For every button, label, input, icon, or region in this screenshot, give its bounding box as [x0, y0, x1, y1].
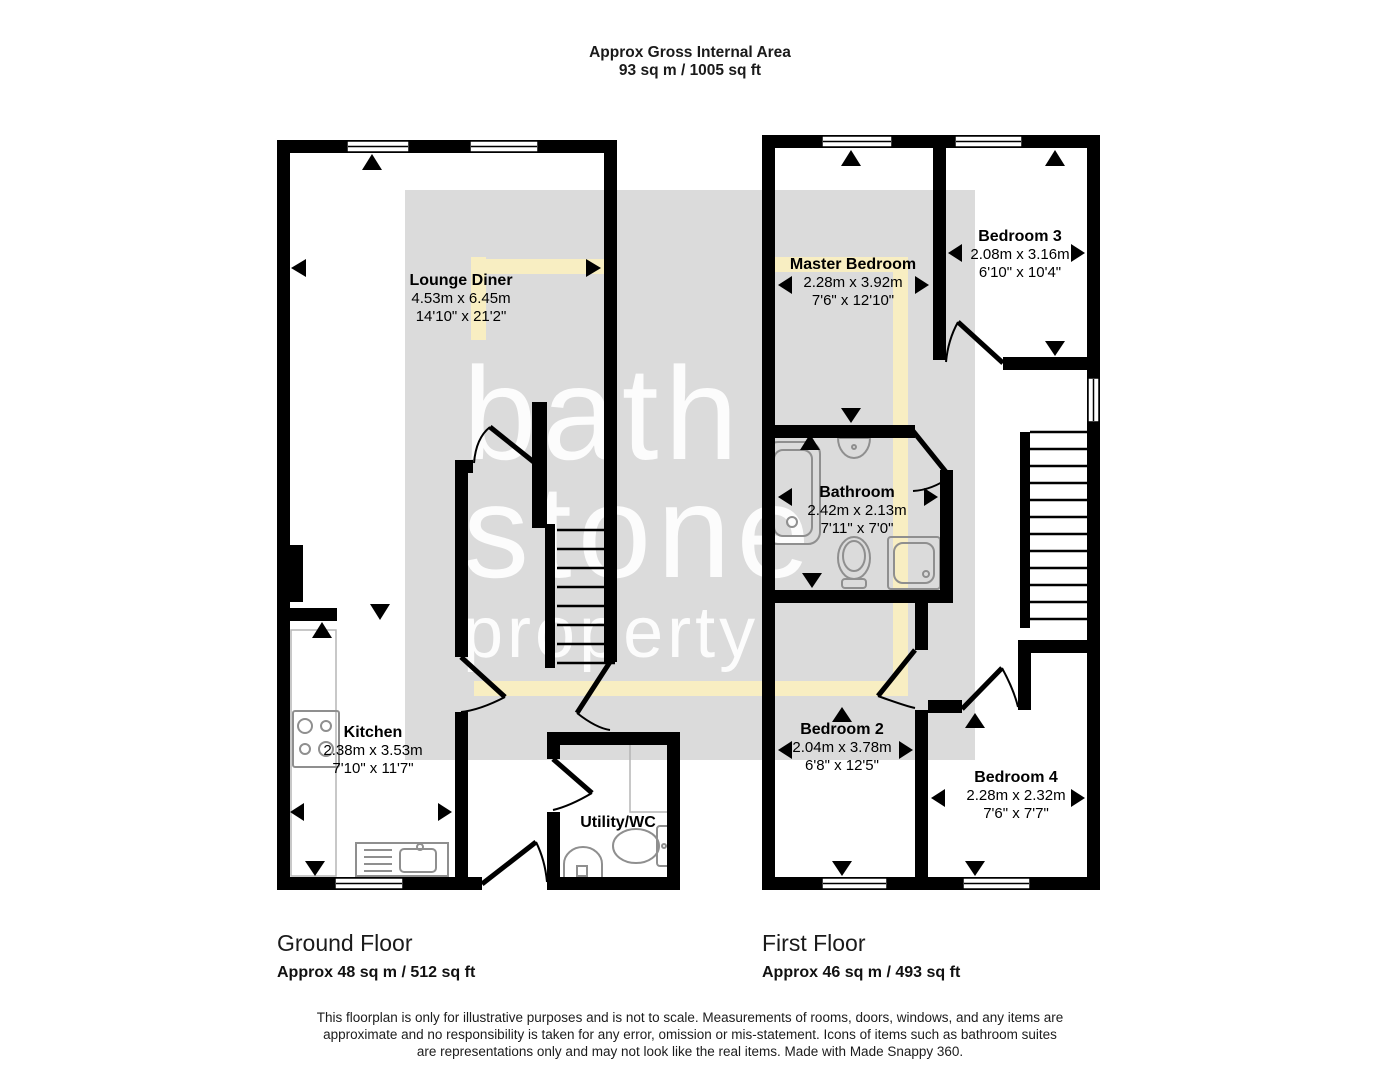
utility-basin-icon [564, 847, 602, 877]
room-imperial: 7'6" x 7'7" [896, 805, 1136, 823]
first-stairs [1030, 432, 1087, 619]
room-name: Utility/WC [498, 814, 738, 832]
floor-name: First Floor [762, 930, 1182, 957]
room-label-lounge-diner: Lounge Diner 4.53m x 6.45m 14'10" x 21'2… [341, 272, 581, 326]
arrow-right-icon [438, 803, 452, 821]
disclaimer-line3: are representations only and may not loo… [290, 1043, 1090, 1060]
door-back [482, 842, 547, 884]
floor-area: Approx 46 sq m / 493 sq ft [762, 964, 1182, 982]
room-metric: 2.42m x 2.13m [737, 502, 977, 520]
arrow-down-icon [1045, 341, 1065, 356]
room-imperial: 7'11" x 7'0" [737, 520, 977, 538]
window [963, 878, 1030, 889]
floorplan-page: Approx Gross Internal Area 93 sq m / 100… [0, 0, 1381, 1080]
arrow-up-icon [312, 622, 332, 638]
utility-toilet-icon [613, 826, 672, 866]
title-line1: Approx Gross Internal Area [440, 44, 940, 62]
room-name: Kitchen [253, 724, 493, 742]
arrow-down-icon [832, 861, 852, 876]
room-metric: 2.28m x 2.32m [896, 787, 1136, 805]
room-name: Lounge Diner [341, 272, 581, 290]
room-name: Bedroom 2 [722, 721, 962, 739]
room-name: Bathroom [737, 484, 977, 502]
arrow-down-icon [370, 604, 390, 620]
arrow-down-icon [965, 861, 985, 876]
door-utility [553, 759, 592, 810]
window [347, 141, 409, 152]
floor-area: Approx 48 sq m / 512 sq ft [277, 964, 697, 982]
arrow-left-icon [290, 803, 304, 821]
floor-name: Ground Floor [277, 930, 697, 957]
room-name: Bedroom 3 [900, 228, 1140, 246]
route-highlight-bottom-horizontal [474, 681, 908, 696]
arrow-left-icon [291, 259, 306, 277]
room-metric: 2.08m x 3.16m [900, 246, 1140, 264]
room-metric: 4.53m x 6.45m [341, 290, 581, 308]
window [335, 878, 403, 889]
route-highlight-first-vertical [893, 257, 908, 696]
room-label-utility-wc: Utility/WC [498, 814, 738, 832]
kitchen-sink-icon [356, 843, 448, 876]
arrow-up-icon [1045, 150, 1065, 166]
arrow-up-icon [841, 150, 861, 166]
first-floor-caption: First Floor Approx 46 sq m / 493 sq ft [762, 930, 1182, 982]
room-label-bedroom-4: Bedroom 4 2.28m x 2.32m 7'6" x 7'7" [896, 769, 1136, 823]
room-imperial: 7'6" x 12'10" [733, 292, 973, 310]
disclaimer-line1: This floorplan is only for illustrative … [290, 1009, 1090, 1026]
ground-floor-caption: Ground Floor Approx 48 sq m / 512 sq ft [277, 930, 697, 982]
disclaimer-line2: approximate and no responsibility is tak… [290, 1026, 1090, 1043]
arrow-up-icon [362, 154, 382, 170]
room-imperial: 14'10" x 21'2" [341, 308, 581, 326]
room-imperial: 7'10" x 11'7" [253, 760, 493, 778]
room-name: Bedroom 4 [896, 769, 1136, 787]
room-imperial: 6'10" x 10'4" [900, 264, 1140, 282]
disclaimer-text: This floorplan is only for illustrative … [290, 1009, 1090, 1060]
window [1088, 378, 1099, 422]
watermark-word-property: property [463, 592, 759, 674]
room-label-bathroom: Bathroom 2.42m x 2.13m 7'11" x 7'0" [737, 484, 977, 538]
window [470, 141, 538, 152]
room-metric: 2.04m x 3.78m [722, 739, 962, 757]
window [955, 136, 1022, 147]
arrow-down-icon [305, 861, 325, 876]
window [822, 136, 892, 147]
room-metric: 2.38m x 3.53m [253, 742, 493, 760]
title-line2: 93 sq m / 1005 sq ft [440, 62, 940, 80]
window [822, 878, 887, 889]
room-label-bedroom-3: Bedroom 3 2.08m x 3.16m 6'10" x 10'4" [900, 228, 1140, 282]
page-title: Approx Gross Internal Area 93 sq m / 100… [440, 44, 940, 79]
room-label-bedroom-2: Bedroom 2 2.04m x 3.78m 6'8" x 12'5" [722, 721, 962, 775]
room-label-kitchen: Kitchen 2.38m x 3.53m 7'10" x 11'7" [253, 724, 493, 778]
